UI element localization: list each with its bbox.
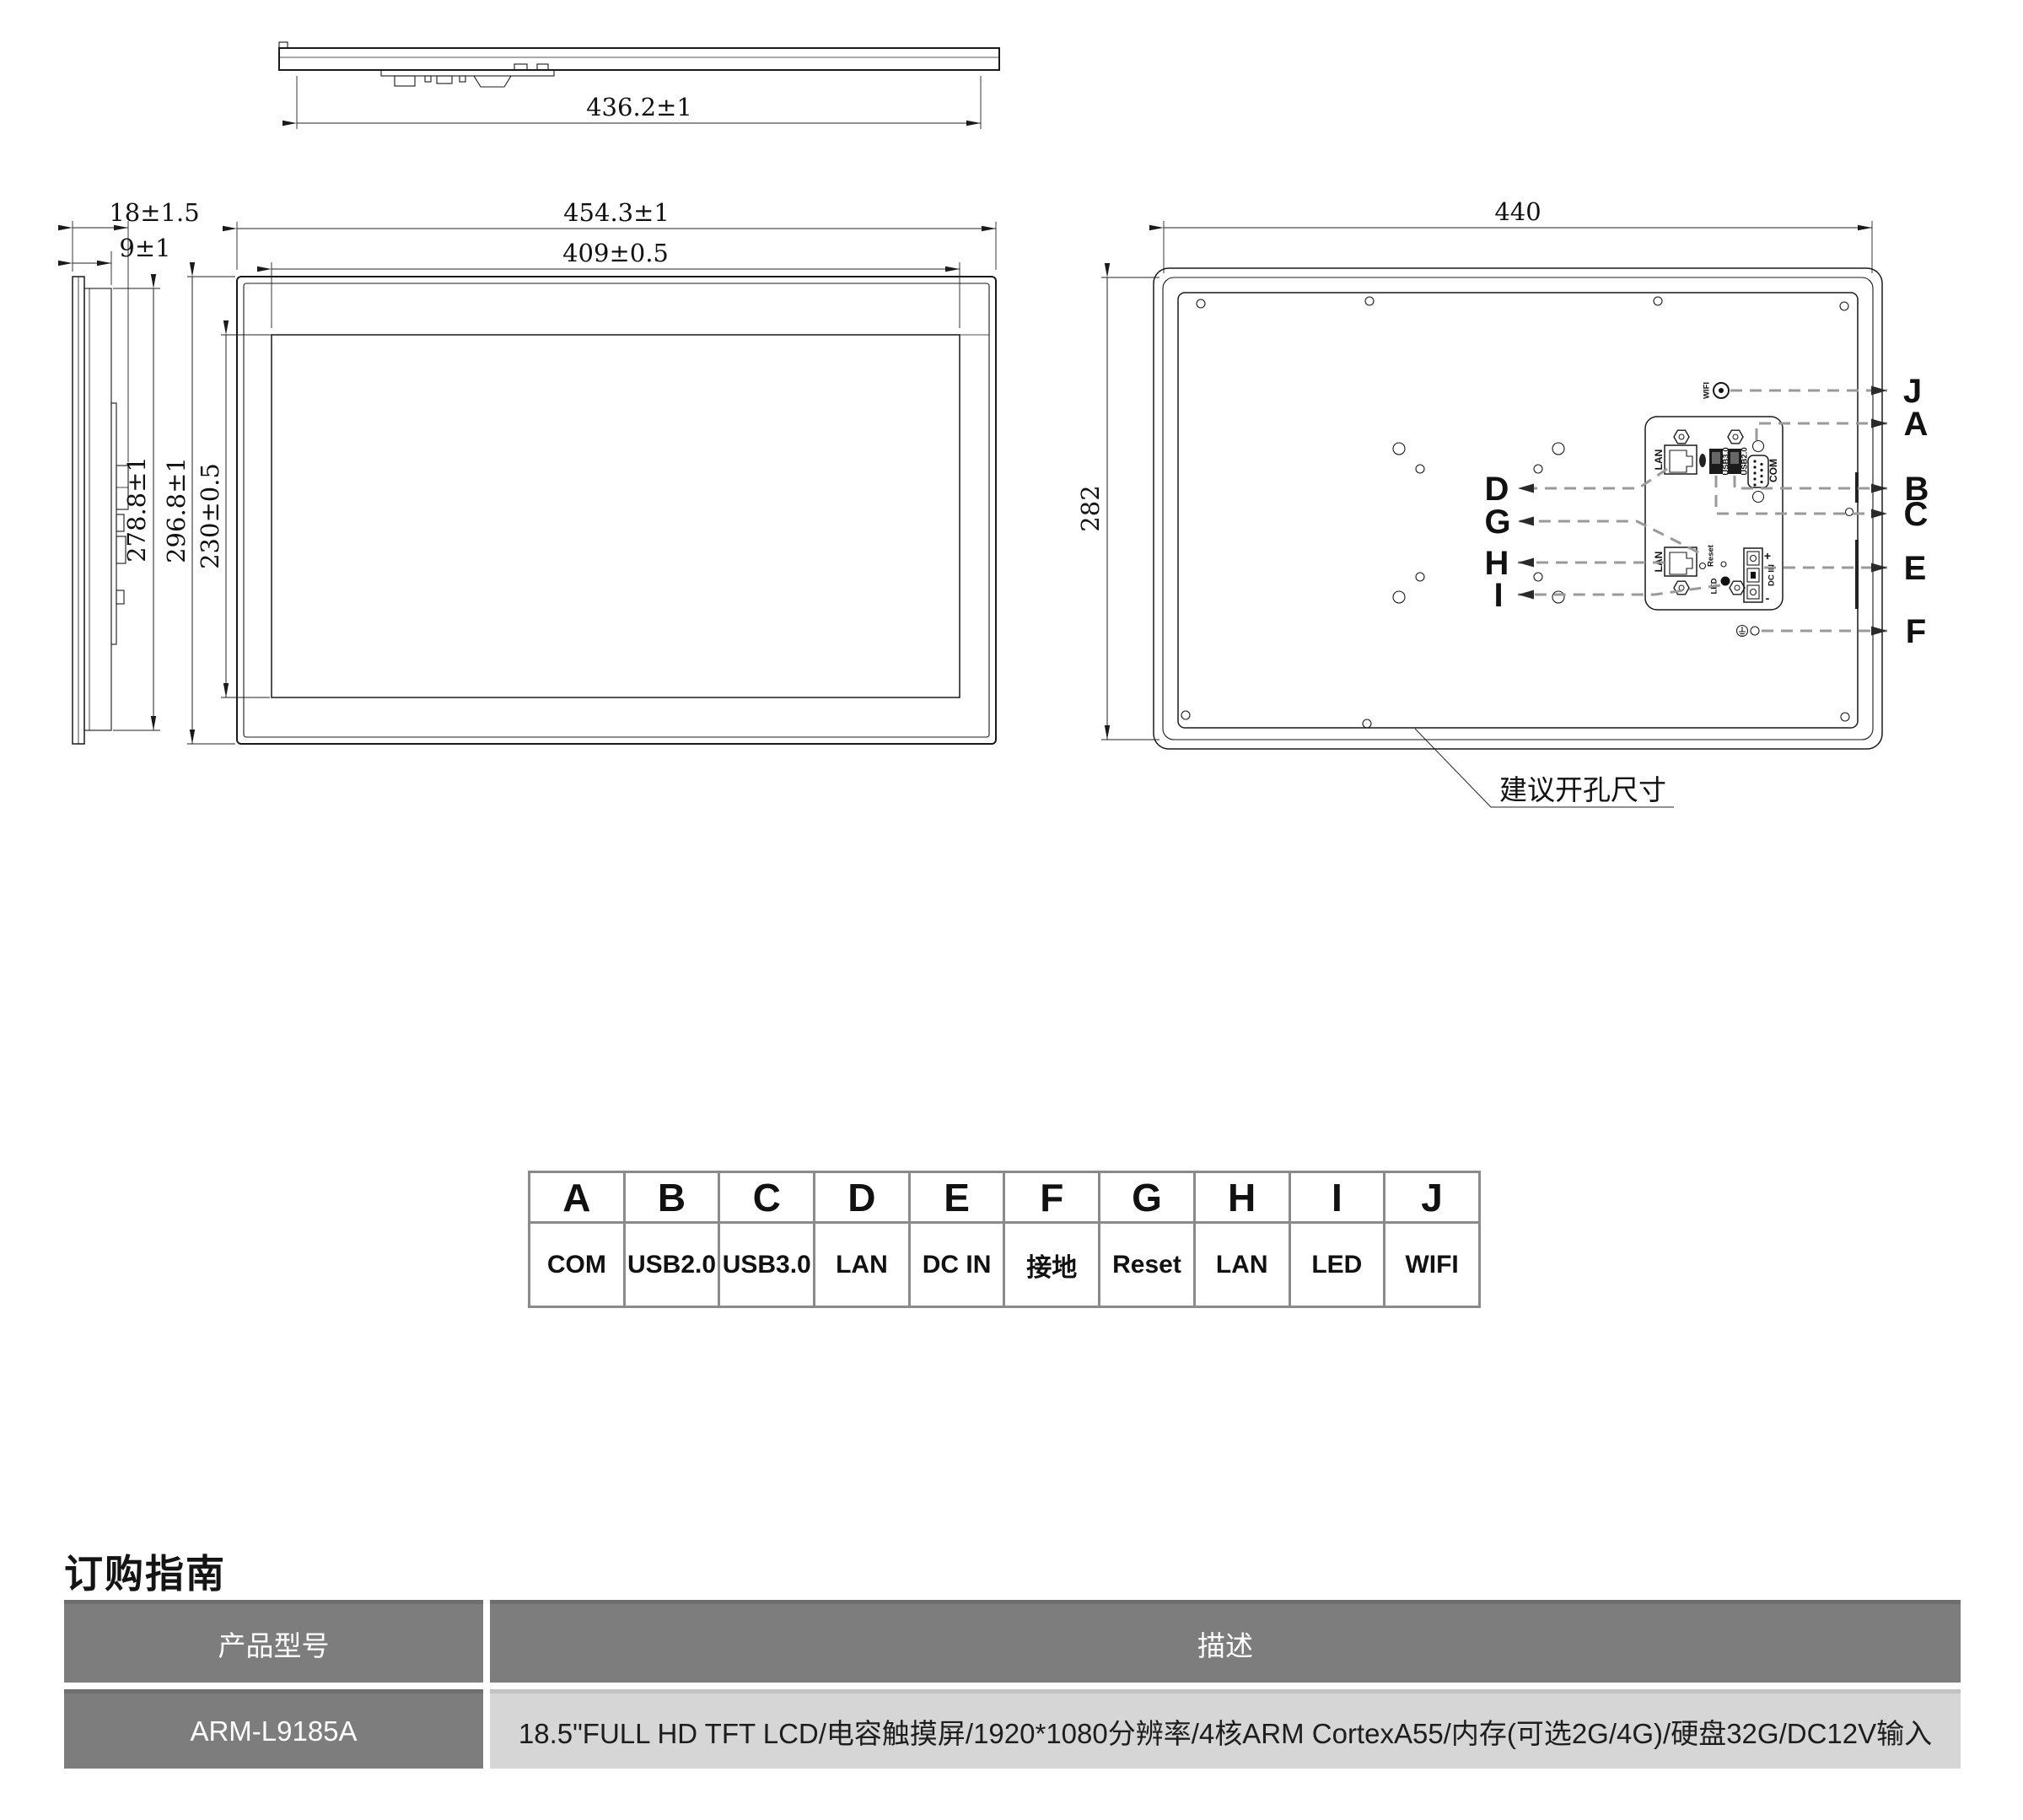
dim-top-width-text: 436.2±1	[586, 93, 692, 121]
reset-label: Reset	[1707, 544, 1716, 567]
dim-rear-cutout-height: 282	[1076, 277, 1159, 740]
callout-letter-I: I	[1493, 577, 1503, 614]
datasheet-page: 436.2±1 18±1.5 9±1 278.8±1	[0, 0, 2023, 1820]
legend-key: H	[1194, 1172, 1289, 1223]
rear-view: LAN USB3.0 USB2.0	[1076, 197, 1929, 807]
legend-key: B	[624, 1172, 719, 1223]
legend-label: DC IN	[909, 1223, 1004, 1307]
dim-front-outer-width-text: 454.3±1	[563, 198, 670, 227]
ordering-header-description: 描述	[490, 1600, 1961, 1683]
port-legend-table: A B C D E F G H I J COM USB2.0 USB3.0 LA…	[528, 1171, 1481, 1308]
rear-screw-holes	[1181, 297, 1854, 728]
dim-rear-cutout-width: 440	[1164, 197, 1872, 273]
legend-label: Reset	[1100, 1223, 1195, 1307]
com-port: COM	[1748, 441, 1779, 503]
lan-top-label: LAN	[1653, 450, 1665, 471]
legend-label: 接地	[1004, 1223, 1100, 1307]
cutout-note: 建议开孔尺寸	[1415, 729, 1674, 807]
com-label: COM	[1767, 459, 1779, 482]
dim-side-total-text: 18±1.5	[109, 198, 199, 227]
wifi-antenna-connector: WIFI	[1703, 382, 1729, 399]
panel-slot	[1699, 454, 1706, 467]
callout-letter-C: C	[1904, 496, 1929, 533]
vesa-mount-holes	[1393, 443, 1564, 603]
ordering-header-model: 产品型号	[64, 1600, 483, 1683]
dim-front-active-height: 230±0.5	[196, 335, 270, 697]
ordering-description-cell: 18.5"FULL HD TFT LCD/电容触摸屏/1920*1080分辨率/…	[490, 1689, 1961, 1769]
dim-rear-height-text: 282	[1076, 485, 1105, 531]
dim-side-front-text: 9±1	[119, 234, 170, 262]
ground-terminal	[1737, 626, 1760, 637]
callout-letter-J: J	[1903, 373, 1922, 410]
dc-minus-label: -	[1766, 591, 1770, 605]
legend-key: E	[909, 1172, 1004, 1223]
callout-letter-E: E	[1904, 550, 1927, 587]
legend-label: LED	[1289, 1223, 1385, 1307]
lan-port-top: LAN	[1653, 445, 1697, 474]
callout-letter-D: D	[1485, 471, 1509, 508]
dim-front-active-width-text: 409±0.5	[562, 239, 669, 267]
reset-button: Reset	[1700, 544, 1727, 568]
legend-key: F	[1004, 1172, 1100, 1223]
cutout-note-text: 建议开孔尺寸	[1499, 774, 1666, 805]
ordering-model-cell: ARM-L9185A	[64, 1689, 483, 1769]
dim-top-view-width: 436.2±1	[297, 76, 981, 129]
technical-drawing: 436.2±1 18±1.5 9±1 278.8±1	[0, 0, 2023, 852]
dim-side-front-thickness: 9±1	[73, 234, 171, 285]
legend-key: J	[1385, 1172, 1480, 1223]
dim-side-height-text: 278.8±1	[122, 456, 151, 563]
legend-key: A	[530, 1172, 625, 1223]
ordering-guide-heading: 订购指南	[64, 1543, 226, 1599]
legend-label: LAN	[1194, 1223, 1289, 1307]
top-view: 436.2±1	[279, 42, 999, 129]
usb2-port: USB2.0	[1728, 447, 1750, 475]
wifi-label: WIFI	[1703, 382, 1712, 399]
dim-front-outer-height-text: 296.8±1	[162, 457, 191, 563]
legend-label: LAN	[815, 1223, 910, 1307]
legend-label: COM	[530, 1223, 625, 1307]
legend-label: USB3.0	[719, 1223, 815, 1307]
usb3-port: USB3.0	[1709, 447, 1731, 475]
legend-label: WIFI	[1385, 1223, 1480, 1307]
legend-key-row: A B C D E F G H I J	[530, 1172, 1480, 1223]
legend-label-row: COM USB2.0 USB3.0 LAN DC IN 接地 Reset LAN…	[530, 1223, 1480, 1307]
legend-key: C	[719, 1172, 815, 1223]
legend-key: G	[1100, 1172, 1195, 1223]
dc-in-connector: + - DC IN	[1744, 548, 1777, 605]
dim-front-active-height-text: 230±0.5	[196, 463, 224, 569]
legend-key: I	[1289, 1172, 1385, 1223]
callout-letter-A: A	[1904, 406, 1929, 443]
dim-rear-width-text: 440	[1494, 197, 1541, 226]
legend-key: D	[815, 1172, 910, 1223]
legend-label: USB2.0	[624, 1223, 719, 1307]
callout-letter-G: G	[1484, 503, 1510, 541]
front-screen-area	[272, 335, 960, 697]
edge-slot-lower	[1855, 540, 1859, 609]
callout-leaders	[1518, 390, 1887, 631]
dc-plus-label: +	[1764, 549, 1771, 563]
callout-letter-F: F	[1906, 613, 1926, 650]
front-view: 454.3±1 409±0.5 296.8±1 230±0.5	[162, 198, 996, 744]
